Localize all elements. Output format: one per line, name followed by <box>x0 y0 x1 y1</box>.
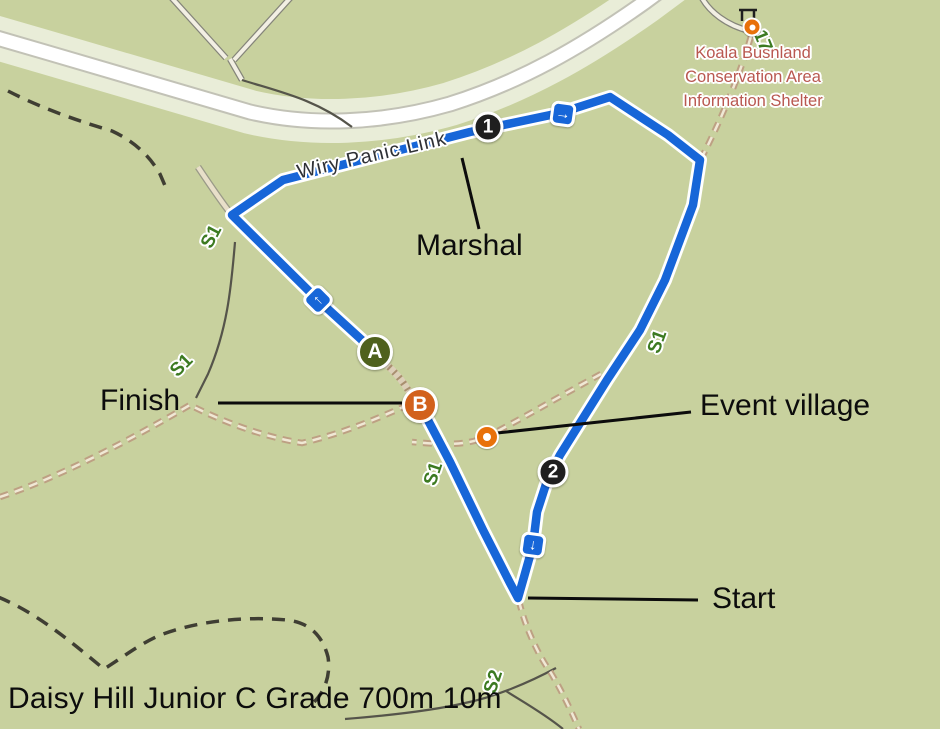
footpath-turn <box>198 167 231 214</box>
dashed-trail-nw <box>8 91 166 188</box>
leader-start <box>528 598 698 600</box>
route-endpoint-b: B <box>402 387 438 423</box>
marshal-label: Marshal <box>416 230 523 262</box>
leader-lines <box>218 158 698 600</box>
thin-trail-s1-west <box>196 242 235 398</box>
arrow-up-left-icon: ↑ <box>310 292 326 308</box>
thin-trail-south-2 <box>506 691 563 729</box>
information-shelter-marker-center <box>749 24 755 30</box>
control-marker-2: 2 <box>538 457 569 488</box>
control-marker-1: 1 <box>473 112 504 143</box>
event-village-marker-center <box>483 433 491 441</box>
arrow-right-icon: → <box>555 106 572 123</box>
tan-trail-finish-stripe <box>0 405 403 497</box>
course-map: Wiry Panic Link Koala Bushland Conservat… <box>0 0 940 729</box>
leader-marshal <box>462 158 479 229</box>
finish-label: Finish <box>100 385 180 417</box>
footpath-y-casing <box>170 0 292 80</box>
poi-label-line3: Information Shelter <box>683 89 822 113</box>
poi-label-line2: Conservation Area <box>683 65 822 89</box>
information-shelter-marker <box>743 18 762 37</box>
event-village-label: Event village <box>700 390 870 422</box>
arrow-down-icon: ↓ <box>528 537 538 553</box>
event-village-marker <box>475 425 499 449</box>
tan-trail-finish <box>0 405 403 497</box>
start-label: Start <box>712 583 775 615</box>
tan-trail-start-south <box>519 601 579 729</box>
poi-label: Koala Bushland Conservation Area Informa… <box>683 41 822 113</box>
course-title: Daisy Hill Junior C Grade 700m 10m <box>8 682 502 716</box>
direction-badge-down: ↓ <box>519 531 547 559</box>
direction-badge-right: → <box>549 100 577 128</box>
route-endpoint-a: A <box>357 334 393 370</box>
